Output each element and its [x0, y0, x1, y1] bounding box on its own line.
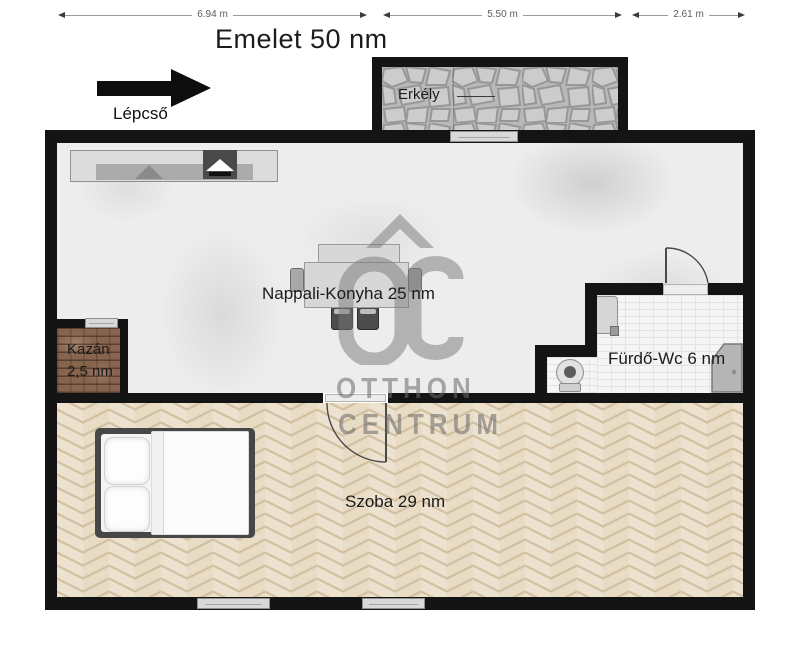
dimension-ruler-2: 5.50 m	[383, 9, 622, 21]
dimension-label: 6.94 m	[192, 9, 233, 21]
stairs-arrowhead-icon	[171, 69, 211, 107]
wall-left	[45, 130, 57, 610]
toilet-icon	[556, 359, 584, 386]
bed-pillow-top	[104, 437, 150, 485]
dimension-line	[639, 15, 668, 16]
wall-top	[45, 130, 755, 143]
dimension-line	[65, 15, 192, 16]
arrow-left-icon	[58, 12, 65, 18]
dimension-line	[233, 15, 360, 16]
dimension-ruler-1: 6.94 m	[58, 9, 367, 21]
bathroom-wall-top-right	[708, 283, 755, 295]
arrow-right-icon	[615, 12, 622, 18]
page-title: Emelet 50 nm	[215, 24, 388, 55]
balcony-wall-top	[372, 57, 628, 67]
bedroom-window-1	[197, 598, 270, 609]
boiler-label-line1: Kazán	[67, 341, 110, 358]
dimension-line	[709, 15, 738, 16]
bathroom-wall-left-lower	[535, 345, 547, 403]
floorplan-canvas: 6.94 m 5.50 m 2.61 m Emelet 50 nm Lépcső	[0, 0, 800, 655]
kitchen-sink-icon	[135, 165, 163, 179]
living-room-label: Nappali-Konyha 25 nm	[262, 284, 435, 304]
boiler-room-floor	[57, 328, 120, 393]
bedroom-label: Szoba 29 nm	[345, 492, 445, 512]
bathroom-label: Fürdő-Wc 6 nm	[608, 349, 725, 369]
balcony-label: Erkély	[398, 86, 440, 103]
bathroom-door	[661, 248, 711, 296]
arrow-left-icon	[632, 12, 639, 18]
dimension-line	[390, 15, 482, 16]
bed-duvet	[151, 431, 249, 535]
wall-divider-left	[45, 393, 323, 403]
arrow-right-icon	[738, 12, 745, 18]
boiler-wall-top-left	[55, 319, 85, 328]
boiler-window	[85, 318, 118, 328]
balcony-leader-line	[457, 96, 495, 97]
arrow-right-icon	[360, 12, 367, 18]
boiler-wall-right	[120, 319, 128, 403]
stairs-arrow-icon	[97, 81, 171, 96]
dimension-line	[523, 15, 615, 16]
balcony-wall-left	[372, 57, 382, 130]
stove-hood-icon	[203, 150, 237, 179]
wall-right	[743, 130, 755, 610]
boiler-label-line2: 2,5 nm	[67, 363, 113, 380]
balcony-section-divider	[453, 67, 454, 130]
dimension-label: 5.50 m	[482, 9, 523, 21]
toilet-tank	[559, 383, 581, 392]
balcony-wall-right	[618, 57, 628, 130]
watermark-text-line1: OTTHON	[336, 371, 476, 406]
arrow-left-icon	[383, 12, 390, 18]
bathroom-wall-left-upper	[585, 283, 597, 352]
balcony-door-window	[450, 131, 518, 142]
watermark-text-line2: CENTRUM	[338, 407, 503, 442]
dimension-label: 2.61 m	[668, 9, 709, 21]
double-bed	[95, 428, 255, 538]
kitchen-counter	[70, 150, 278, 182]
stairs-label: Lépcső	[113, 104, 168, 124]
dimension-ruler-3: 2.61 m	[632, 9, 745, 21]
bedroom-window-2	[362, 598, 425, 609]
bathroom-radiator	[594, 296, 618, 334]
bed-pillow-bottom	[104, 486, 150, 532]
